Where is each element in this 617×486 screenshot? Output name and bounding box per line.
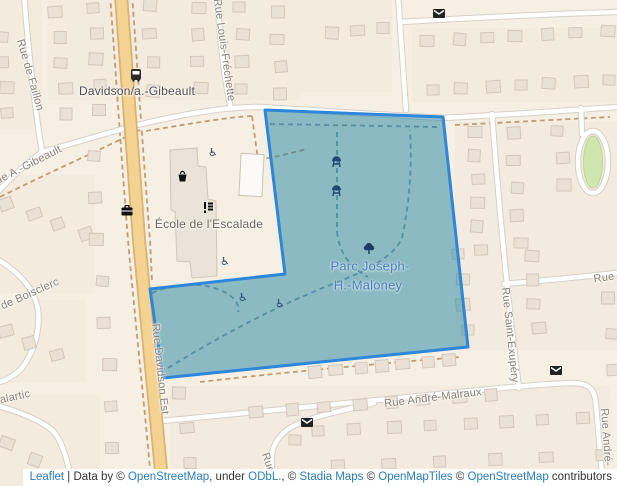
waste-basket-icon bbox=[176, 170, 189, 183]
bbq-grill-icon bbox=[330, 156, 343, 169]
wheelchair-icon: ♿ bbox=[275, 298, 285, 309]
school-court bbox=[239, 153, 264, 196]
attribution-text: © bbox=[453, 471, 468, 483]
attribution-bar: Leaflet | Data by © OpenStreetMap, under… bbox=[23, 469, 617, 486]
attribution-text: Data by © bbox=[73, 471, 128, 483]
attribution-text: , © bbox=[281, 471, 299, 483]
attribution-text: © bbox=[363, 471, 378, 483]
wheelchair-icon: ♿ bbox=[208, 147, 218, 158]
leaflet-link[interactable]: Leaflet bbox=[30, 471, 65, 483]
mail-icon bbox=[550, 366, 562, 375]
odbl-link[interactable]: ODbL. bbox=[248, 471, 281, 483]
attribution-text: , under bbox=[209, 471, 248, 483]
transit-stop-label: Davidson/a.-Gibeault bbox=[79, 84, 195, 98]
school-label: École de l'Escalade bbox=[155, 217, 263, 231]
park-label-line2: H.-Maloney bbox=[334, 278, 402, 293]
school-icon bbox=[203, 201, 215, 214]
bbq-grill-icon bbox=[330, 185, 343, 198]
wheelchair-icon: ♿ bbox=[220, 256, 230, 267]
openstreetmap-contributors-link[interactable]: OpenStreetMap bbox=[468, 471, 549, 483]
briefcase-icon bbox=[121, 205, 133, 216]
openmaptiles-link[interactable]: OpenMapTiles bbox=[378, 471, 452, 483]
bus-stop-icon bbox=[130, 68, 142, 82]
openstreetmap-link[interactable]: OpenStreetMap bbox=[128, 471, 209, 483]
tree-icon bbox=[362, 242, 376, 256]
mail-icon bbox=[433, 9, 445, 18]
basemap-tiles bbox=[0, 0, 617, 486]
attribution-text: contributors bbox=[549, 471, 612, 483]
map-canvas[interactable]: ♿ ♿ ♿ ♿ Rue de Faillon Rue A.-Gibeault R… bbox=[0, 0, 617, 486]
stadia-maps-link[interactable]: Stadia Maps bbox=[299, 471, 363, 483]
wheelchair-icon: ♿ bbox=[238, 292, 248, 303]
park-label-line1: Parc Joseph- bbox=[331, 259, 410, 274]
grass-oval bbox=[584, 136, 603, 188]
mail-icon bbox=[301, 418, 313, 427]
